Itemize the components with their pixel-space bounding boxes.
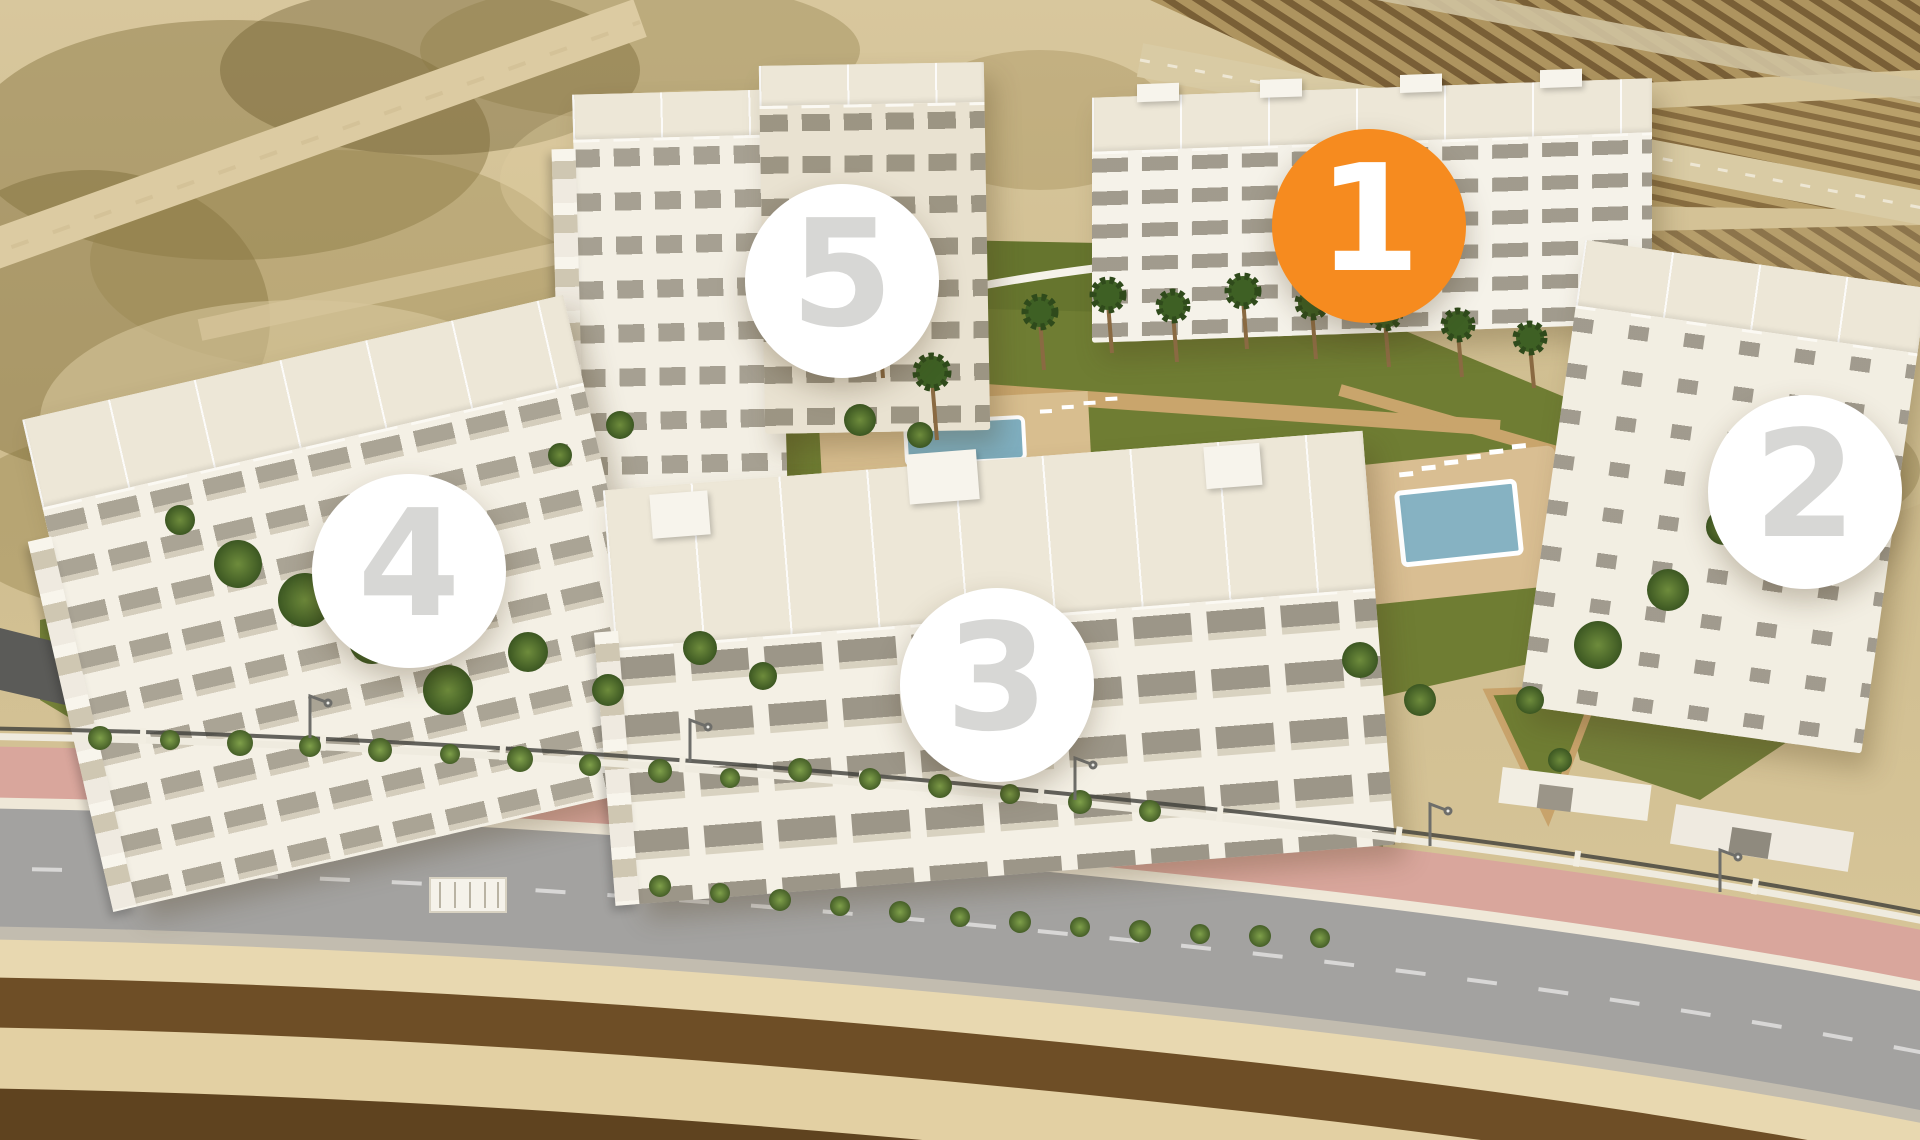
building-marker-5[interactable]: 5 bbox=[745, 184, 939, 378]
building-marker-4[interactable]: 4 bbox=[312, 474, 506, 668]
building-marker-3-label: 3 bbox=[946, 604, 1049, 752]
building-marker-2-label: 2 bbox=[1754, 411, 1857, 559]
building-marker-1[interactable]: 1 bbox=[1272, 129, 1466, 323]
building-marker-2[interactable]: 2 bbox=[1708, 395, 1902, 589]
building-marker-1-label: 1 bbox=[1318, 145, 1421, 293]
aerial-render: 1 2 3 4 5 bbox=[0, 0, 1920, 1140]
building-marker-3[interactable]: 3 bbox=[900, 588, 1094, 782]
building-marker-4-label: 4 bbox=[358, 490, 461, 638]
swimming-pool-right bbox=[1397, 481, 1522, 565]
building-marker-5-label: 5 bbox=[791, 200, 894, 348]
